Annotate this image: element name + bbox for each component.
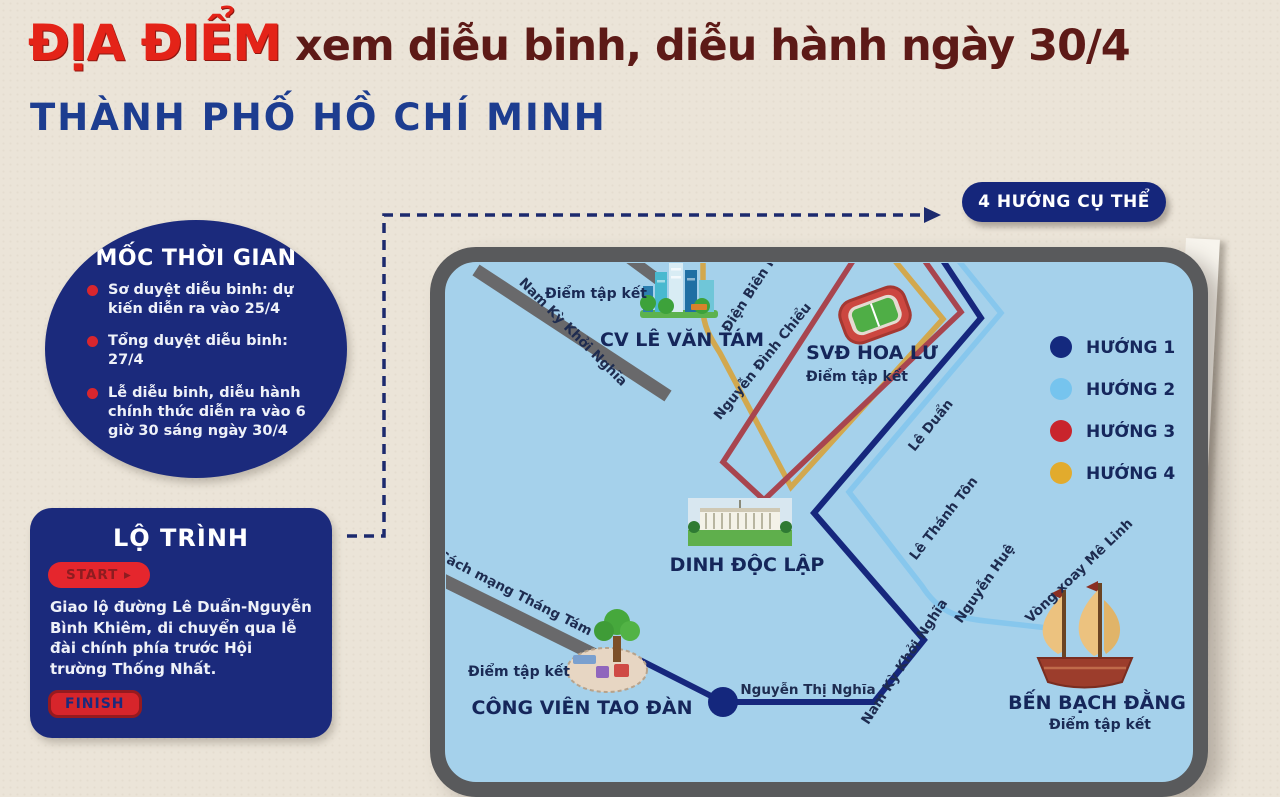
legend-dot-huong-2 <box>1050 378 1072 400</box>
legend-label-huong-1: HƯỚNG 1 <box>1086 336 1175 358</box>
independence-palace-icon <box>688 498 792 546</box>
street-label-vong-xoay-me-linh: Vòng xoay Mê Linh <box>1022 516 1136 627</box>
directions-pill: 4 HƯỚNG CỤ THỂ <box>962 182 1166 222</box>
legend-label-huong-3: HƯỚNG 3 <box>1086 420 1175 442</box>
landmark-svd-hoa-lu: SVĐ HOA LƯ <box>806 342 938 364</box>
arrowhead-icon <box>924 207 941 223</box>
assembly-label: Điểm tập kết <box>468 663 570 680</box>
legend-label-huong-4: HƯỚNG 4 <box>1086 462 1175 484</box>
landmark-cong-vien-tao-dan: CÔNG VIÊN TAO ĐÀN <box>472 695 693 719</box>
street-label-nguyen-thi-nghia: Nguyễn Thị Nghĩa <box>740 681 875 698</box>
legend-dot-huong-3 <box>1050 420 1072 442</box>
map-legend: HƯỚNG 1 HƯỚNG 2 HƯỚNG 3 HƯỚNG 4 <box>1050 336 1175 484</box>
assembly-label: Điểm tập kết <box>806 368 908 385</box>
landmark-dinh-doc-lap: DINH ĐỘC LẬP <box>670 552 825 576</box>
street-label-nguyen-hue: Nguyễn Huệ <box>951 540 1018 626</box>
assembly-label: Điểm tập kết <box>1049 716 1151 733</box>
street-label-le-duan: Lê Duẩn <box>904 396 956 455</box>
map: Nam Kỳ Khởi Nghĩa Điện Biên Phủ Nguyễn Đ… <box>430 247 1210 767</box>
infographic-page: { "header": { "title_highlight": "ĐỊA ĐI… <box>0 0 1280 720</box>
hoa-lu-stadium-icon <box>836 283 915 348</box>
legend-dot-huong-1 <box>1050 336 1072 358</box>
landmark-ben-bach-dang: BẾN BẠCH ĐẰNG <box>1008 688 1186 714</box>
street-label-dien-bien-phu: Điện Biên Phủ <box>719 247 791 335</box>
assembly-label: Điểm tập kết <box>545 285 647 302</box>
legend-dot-huong-4 <box>1050 462 1072 484</box>
route-junction-dot <box>708 687 738 717</box>
street-label-le-thanh-ton: Lê Thánh Tôn <box>906 474 981 564</box>
landmark-cv-le-van-tam: CV LÊ VĂN TÁM <box>600 327 764 351</box>
legend-label-huong-2: HƯỚNG 2 <box>1086 378 1175 400</box>
